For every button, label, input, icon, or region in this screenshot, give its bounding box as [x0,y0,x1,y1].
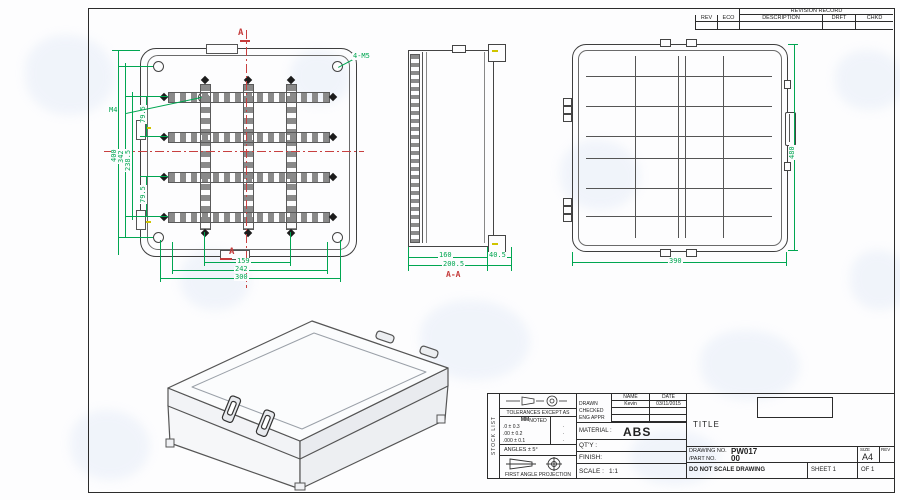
callout-4-m5: 4-M5 [352,53,371,60]
section-arrow-bottom [220,258,232,260]
of-cell: OF 1 [857,463,895,478]
dim-screw-width: 242 [234,266,249,273]
tolerance-mark: · [551,424,576,431]
do-not-scale-cell: DO NOT SCALE DRAWING [687,463,807,478]
foot-tab [437,415,445,423]
title-block: STOCK LIST TOLERANCES EXCEPT AS NOTED MM… [487,393,895,479]
hinge-knuckle-3d [419,345,439,358]
eng-appr-date [649,415,687,422]
hinge-knuckle-3d [375,330,395,343]
yellow-mark [146,221,151,223]
extension-line [112,50,140,51]
first-angle-symbol [506,457,582,471]
eng-appr-role: ENG APPR [579,415,611,422]
horizontal-rail [168,92,330,103]
section-letter-bottom: A [229,248,234,257]
section-arrow-top [240,40,250,42]
part-no-value: 00 [731,454,740,463]
hinge-knuckle [563,206,572,214]
vertical-rail [286,84,297,230]
finish-row: FINISH: [577,451,687,463]
part-no-row: /PART NO. 00 [687,454,857,463]
drawn-date: 03/11/2015 [649,401,687,408]
logo-placeholder-box [757,397,833,418]
projection-block: FIRST ANGLE PROJECTION [500,455,576,478]
extension-line [788,250,798,251]
rib-line-horizontal [586,136,772,137]
cone-and-circles-symbol [504,394,580,408]
rib-line-vertical [678,56,679,238]
section-line-vertical [246,30,247,288]
eng-appr-name [611,415,649,422]
horizontal-rail [168,172,330,183]
dim-rail-span: 238.5 [125,149,132,172]
extension-line [160,240,161,282]
isometric-box-drawing [140,293,470,493]
checked-name [611,408,649,415]
foot-tab [166,439,174,447]
foot-tab [295,483,305,490]
side-view-top-latch [488,44,506,62]
revision-col-description: DESCRIPTION [739,15,822,22]
section-label: A-A [446,271,460,279]
rib-line-vertical [723,56,724,238]
material-row: MATERIAL : ABS [577,422,687,439]
revision-empty-cell [739,22,822,30]
revision-col-chkd: CHKD [855,15,893,22]
tolerance-mark: · [551,431,576,438]
dim-back-height: 480 [789,145,796,160]
extension-line [340,240,341,282]
drawn-name: Kevin [611,401,649,408]
revision-empty-cell [695,22,717,30]
tolerance-table: MM .0 ± 0.3 .00 ± 0.2 .000 ± 0.1 · · · [500,416,576,444]
revision-table-title: REVISION RECORD [739,8,893,15]
centerline-horizontal [104,151,364,152]
dimension-line [172,270,328,271]
angles-tolerance: ANGLES ± 5° [500,444,576,455]
extension-line [487,247,488,271]
extension-line [788,44,798,45]
size-value: A4 [862,452,873,462]
extension-line [572,252,573,266]
title-label: TITLE [693,420,720,429]
unit-header: MM [500,417,550,424]
extension-line [511,247,512,271]
revision-empty-cell [822,22,855,30]
hinge-knuckle [563,198,572,206]
title-block-side-strip: STOCK LIST [488,394,500,478]
date-header: DATE [649,394,687,401]
rev-cell: REV [879,446,895,463]
sheet-cell: SHEET 1 [807,463,857,478]
yellow-mark [492,243,498,245]
revision-col-drft: DRFT [822,15,855,22]
extension-line [290,232,291,266]
side-tab [784,80,791,89]
extension-line [140,176,168,177]
revision-col-rev: REV [695,15,717,22]
corner-screw-hole [153,232,164,243]
approvals-block: NAME DATE DRAWN Kevin 03/11/2015 CHECKED… [576,394,686,478]
revision-col-eco: ECO [717,15,739,22]
corner-screw-hole [332,232,343,243]
side-view-slot-strip [410,54,420,243]
drawn-role: DRAWN [579,401,611,408]
yellow-mark [492,50,498,52]
revision-empty-cell [717,22,739,30]
hinge-knuckle [563,214,572,222]
scale-row: SCALE : 1:1 [577,463,687,478]
front-view-top-tab [206,44,238,54]
hinge-knuckle [563,106,572,114]
dim-outer-width: 300 [234,274,249,281]
hinge-knuckle [563,98,572,106]
rib-line-vertical [685,56,686,238]
horizontal-rail [168,212,330,223]
qty-row: QT'Y : [577,439,687,451]
dim-depth-inner: 160 [438,252,453,259]
side-tab [784,162,791,171]
material-value: ABS [623,425,651,439]
dimension-line [160,278,341,279]
tolerances-heading: TOLERANCES EXCEPT AS NOTED [500,408,576,416]
section-letter-top: A [238,29,243,38]
rib-line-horizontal [586,106,772,107]
side-view-wall-line [422,52,423,243]
drawing-no-row: DRAWING NO. PW017 [687,446,857,454]
dim-depth-overall: 200.5 [442,261,465,268]
checked-date [649,408,687,415]
vertical-rail [200,84,211,230]
dim-rail-spacing: 79.5 [140,185,147,204]
corner-screw-hole [153,61,164,72]
vertical-rail [243,84,254,230]
latch-inner-line [789,114,790,142]
projection-symbols-row [500,394,576,408]
dim-back-width: 390 [668,258,683,265]
extension-line [204,232,205,266]
revision-table: REVISION RECORD REV ECO DESCRIPTION DRFT… [695,8,893,30]
revision-empty-cell [855,22,893,30]
checked-role: CHECKED [579,408,611,415]
top-tab [660,39,671,47]
side-view-outline [408,50,494,247]
side-view-wall-line [484,52,485,243]
tolerance-row: .0 ± 0.3 [503,424,550,431]
front-view-left-notch [136,210,146,230]
material-label: MATERIAL : [579,428,612,434]
scale-label: SCALE : [579,468,604,475]
horizontal-rail [168,132,330,143]
side-view-wall-line [426,52,427,243]
tolerance-row: .00 ± 0.2 [503,431,550,438]
rib-line-horizontal [586,158,772,159]
extension-line [786,252,787,266]
rib-line-horizontal [586,76,772,77]
top-tab [686,39,697,47]
rib-line-horizontal [586,216,772,217]
title-area-block: TITLE DRAWING NO. PW017 /PART NO. 00 SIZ… [686,394,894,478]
dim-rail-width: 159 [236,258,251,265]
name-header: NAME [611,394,649,401]
scale-value: 1:1 [609,468,618,475]
part-no-label: /PART NO. [689,456,716,462]
extension-line [119,237,153,238]
rib-line-horizontal [586,188,772,189]
engineering-drawing-page: { "colors": {"dim_green":"#00a651","sect… [0,0,900,500]
projection-label: FIRST ANGLE PROJECTION [500,471,576,479]
dim-lid-depth: 40.5 [488,252,507,259]
tolerance-block: TOLERANCES EXCEPT AS NOTED MM .0 ± 0.3 .… [500,394,576,478]
bottom-tab [660,249,671,257]
side-view-top-tab [452,45,466,53]
extension-line [140,136,168,137]
rib-line-vertical [635,56,636,238]
size-cell: SIZE A4 [857,446,879,463]
isometric-view [140,293,470,493]
hinge-knuckle [563,114,572,122]
side-strip-label: STOCK LIST [491,416,497,455]
extension-line [408,247,409,271]
bottom-tab [686,249,697,257]
rev-label: REV [881,447,890,452]
callout-m4: M4 [108,107,118,114]
